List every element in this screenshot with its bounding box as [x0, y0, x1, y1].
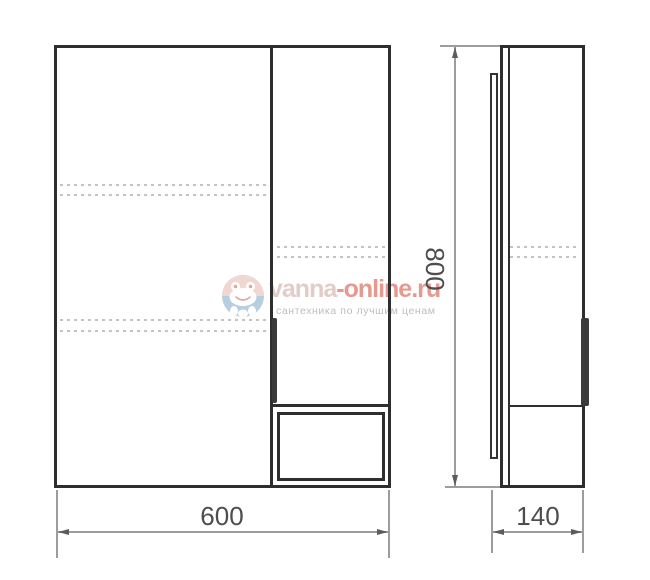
side-view-body-outline: [500, 45, 585, 488]
side-drawer-top-line: [509, 405, 583, 407]
dim-140-line: [493, 531, 582, 533]
front-shelf-dash-2b: [60, 330, 268, 332]
front-shelf-dash-1a: [60, 184, 268, 186]
dim-600-arrow-right: [377, 529, 388, 535]
dim-800-ext-top: [440, 45, 502, 47]
front-shelf-dash-3b: [277, 256, 387, 258]
side-door-handle: [581, 318, 589, 406]
dim-height-label: 800: [422, 239, 448, 299]
dim-600-arrow-left: [58, 529, 69, 535]
front-shelf-dash-2a: [60, 319, 268, 321]
side-shelf-dash-a: [510, 246, 578, 248]
dim-600-line: [58, 531, 388, 533]
front-drawer-top-line: [270, 404, 391, 407]
side-shelf-dash-b: [510, 256, 578, 258]
side-view-front-panel-line: [508, 47, 510, 486]
dim-600-ext-right: [388, 490, 390, 558]
dim-800-arrow-top: [452, 47, 458, 58]
dim-600-ext-left: [56, 490, 58, 558]
front-shelf-dash-1b: [60, 194, 268, 196]
dim-140-ext-left: [491, 490, 493, 553]
front-door-handle: [272, 318, 277, 403]
dim-800-ext-bottom: [445, 486, 501, 488]
dim-140-arrow-left: [493, 529, 504, 535]
technical-drawing-canvas: vanna-online.ru сантехника по лучшим цен…: [0, 0, 650, 580]
dim-depth-label: 140: [505, 503, 571, 529]
front-view-door-divider: [270, 45, 273, 488]
dim-800-arrow-bottom: [452, 475, 458, 486]
side-view-mirror-door-profile: [490, 73, 498, 459]
dim-140-arrow-right: [571, 529, 582, 535]
front-shelf-dash-3a: [277, 246, 387, 248]
dim-800-line: [454, 47, 456, 486]
dim-width-label: 600: [189, 503, 255, 529]
front-drawer-front-panel: [277, 412, 385, 481]
dim-140-ext-right: [582, 490, 584, 553]
